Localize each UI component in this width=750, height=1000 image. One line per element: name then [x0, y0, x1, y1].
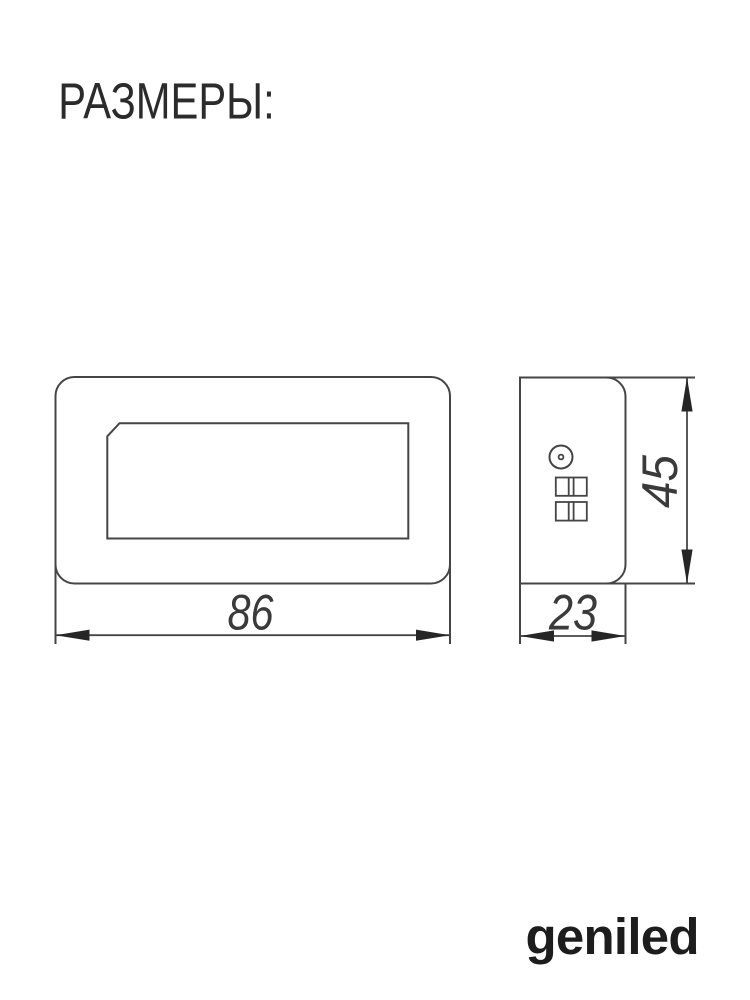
svg-text:23: 23 [548, 585, 597, 641]
svg-text:86: 86 [228, 585, 274, 641]
svg-text:45: 45 [632, 455, 688, 508]
svg-text:geniled: geniled [526, 908, 700, 965]
svg-text:РАЗМЕРЫ:: РАЗМЕРЫ: [58, 72, 274, 129]
